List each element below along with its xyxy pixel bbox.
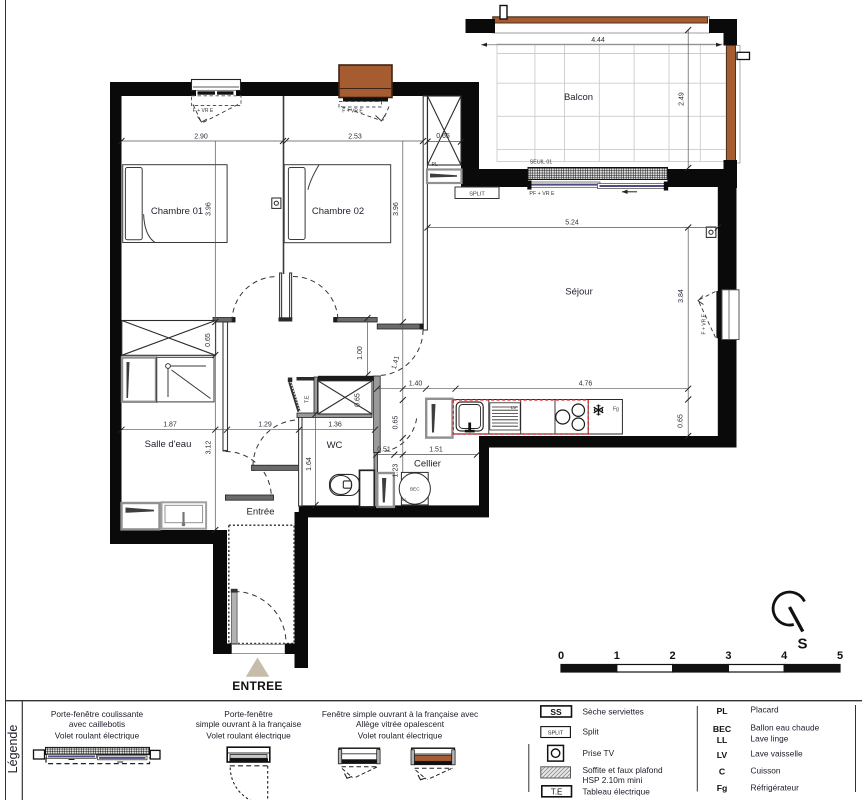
svg-text:1.36: 1.36 [328, 422, 342, 429]
svg-text:3.84: 3.84 [678, 289, 685, 303]
svg-text:Tableau électrique: Tableau électrique [583, 787, 651, 797]
svg-text:Porte-fenêtre coulissante: Porte-fenêtre coulissante [51, 709, 144, 719]
svg-text:Prise TV: Prise TV [583, 748, 615, 758]
svg-text:F + VR E: F + VR E [702, 313, 708, 334]
svg-text:0.51: 0.51 [377, 447, 391, 454]
svg-text:SEUIL 01: SEUIL 01 [530, 160, 553, 166]
svg-text:Ballon eau chaude: Ballon eau chaude [751, 723, 820, 733]
svg-text:4: 4 [781, 650, 788, 662]
svg-text:SS: SS [550, 707, 562, 717]
svg-text:PL: PL [432, 162, 438, 168]
svg-text:Volet roulant électrique: Volet roulant électrique [206, 731, 291, 741]
svg-text:Lave linge: Lave linge [751, 734, 789, 744]
svg-text:avec caillebotis: avec caillebotis [69, 719, 125, 729]
svg-text:Chambre 01: Chambre 01 [151, 206, 203, 217]
svg-text:3: 3 [725, 650, 731, 662]
svg-text:BEC: BEC [410, 487, 420, 492]
svg-text:Entrée: Entrée [247, 507, 275, 518]
svg-text:Allège vitrée opalescent: Allège vitrée opalescent [356, 719, 445, 729]
svg-text:Cuisson: Cuisson [751, 765, 781, 775]
svg-text:1.64: 1.64 [306, 457, 313, 471]
svg-text:1.40: 1.40 [409, 381, 423, 388]
svg-text:PL: PL [716, 706, 728, 716]
svg-text:Légende: Légende [6, 725, 20, 774]
svg-text:2: 2 [670, 650, 676, 662]
svg-text:T.E: T.E [305, 395, 311, 403]
svg-text:simple ouvrant à la française: simple ouvrant à la française [196, 719, 302, 729]
svg-text:Balcon: Balcon [564, 92, 593, 103]
svg-text:5.24: 5.24 [565, 220, 579, 227]
svg-text:Lave vaisselle: Lave vaisselle [751, 749, 804, 759]
svg-text:5: 5 [837, 650, 843, 662]
svg-text:Chambre 02: Chambre 02 [312, 206, 364, 217]
svg-text:1.51: 1.51 [429, 447, 443, 454]
svg-text:S: S [797, 636, 807, 653]
svg-text:3.96: 3.96 [206, 202, 213, 216]
svg-text:2.53: 2.53 [348, 134, 362, 141]
svg-text:HSP 2.10m mini: HSP 2.10m mini [583, 775, 643, 785]
svg-text:Fenêtre simple ouvrant à la fr: Fenêtre simple ouvrant à la française av… [322, 709, 478, 719]
svg-text:LV: LV [511, 405, 517, 411]
svg-text:0.65: 0.65 [678, 414, 685, 428]
svg-text:Placard: Placard [751, 704, 780, 714]
svg-text:ENTREE: ENTREE [232, 679, 282, 693]
svg-text:BEC: BEC [713, 724, 732, 734]
svg-text:Salle d'eau: Salle d'eau [145, 439, 192, 450]
svg-text:Fg: Fg [717, 783, 728, 793]
svg-text:SPLIT: SPLIT [548, 731, 564, 737]
svg-text:Soffite et faux plafond: Soffite et faux plafond [583, 765, 663, 775]
svg-text:PF + VR E: PF + VR E [529, 191, 555, 197]
svg-text:0.65: 0.65 [355, 393, 362, 407]
svg-text:LL: LL [717, 735, 728, 745]
svg-text:Volet roulant électrique: Volet roulant électrique [55, 731, 140, 741]
svg-text:Split: Split [583, 727, 600, 737]
svg-text:1.87: 1.87 [163, 422, 177, 429]
svg-text:4.44: 4.44 [591, 37, 605, 44]
svg-text:Fg: Fg [613, 407, 619, 413]
svg-text:Réfrigérateur: Réfrigérateur [751, 782, 800, 792]
svg-text:2.49: 2.49 [679, 92, 686, 106]
svg-text:1: 1 [614, 650, 620, 662]
svg-text:2.90: 2.90 [194, 134, 208, 141]
svg-text:LV: LV [717, 750, 728, 760]
svg-text:SPLIT: SPLIT [469, 191, 485, 197]
svg-text:F + VR E: F + VR E [193, 108, 214, 114]
svg-text:C: C [719, 767, 726, 777]
svg-text:1.00: 1.00 [357, 346, 364, 360]
svg-text:0: 0 [558, 650, 564, 662]
svg-text:1.23: 1.23 [393, 464, 400, 478]
svg-text:Séjour: Séjour [565, 287, 592, 298]
svg-text:F + VR E: F + VR E [342, 109, 363, 115]
svg-text:3.96: 3.96 [393, 202, 400, 216]
svg-text:0.65: 0.65 [392, 416, 399, 430]
svg-text:T.E: T.E [551, 788, 563, 797]
svg-text:Cellier: Cellier [414, 459, 441, 470]
svg-text:WC: WC [327, 440, 343, 451]
svg-text:Porte-fenêtre: Porte-fenêtre [224, 709, 273, 719]
svg-text:Sèche serviettes: Sèche serviettes [583, 707, 644, 717]
svg-text:0.65: 0.65 [205, 333, 212, 347]
svg-text:0.65: 0.65 [436, 133, 450, 140]
svg-text:3.12: 3.12 [206, 441, 213, 455]
svg-text:LL: LL [402, 497, 408, 502]
svg-text:1.29: 1.29 [258, 422, 272, 429]
svg-text:Volet roulant électrique: Volet roulant électrique [358, 731, 443, 741]
svg-text:4.76: 4.76 [579, 381, 593, 388]
